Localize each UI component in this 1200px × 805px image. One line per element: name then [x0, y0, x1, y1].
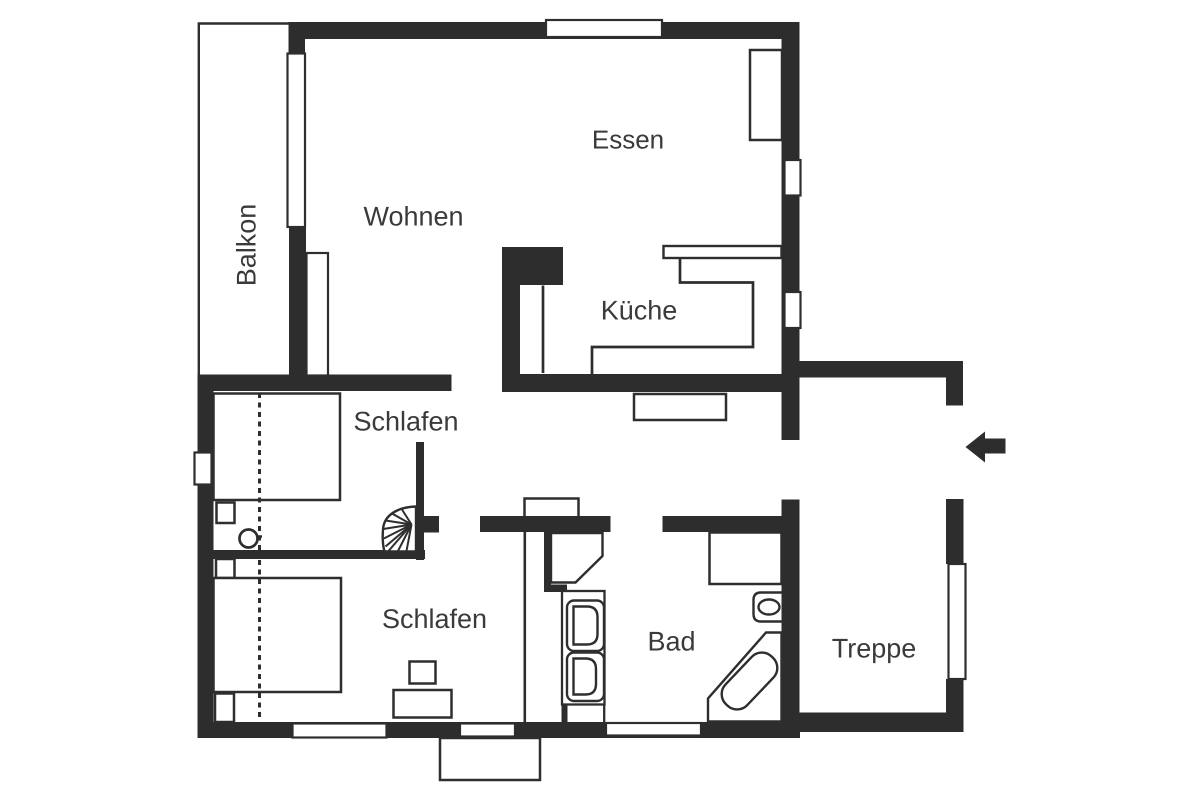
svg-text:Wohnen: Wohnen	[363, 202, 463, 232]
svg-text:Balkon: Balkon	[232, 204, 262, 287]
svg-text:Treppe: Treppe	[832, 634, 917, 664]
svg-text:Schlafen: Schlafen	[382, 604, 487, 634]
svg-text:Schlafen: Schlafen	[353, 407, 458, 437]
svg-text:Essen: Essen	[592, 125, 664, 155]
svg-text:Bad: Bad	[647, 627, 695, 657]
svg-text:Küche: Küche	[601, 296, 678, 326]
